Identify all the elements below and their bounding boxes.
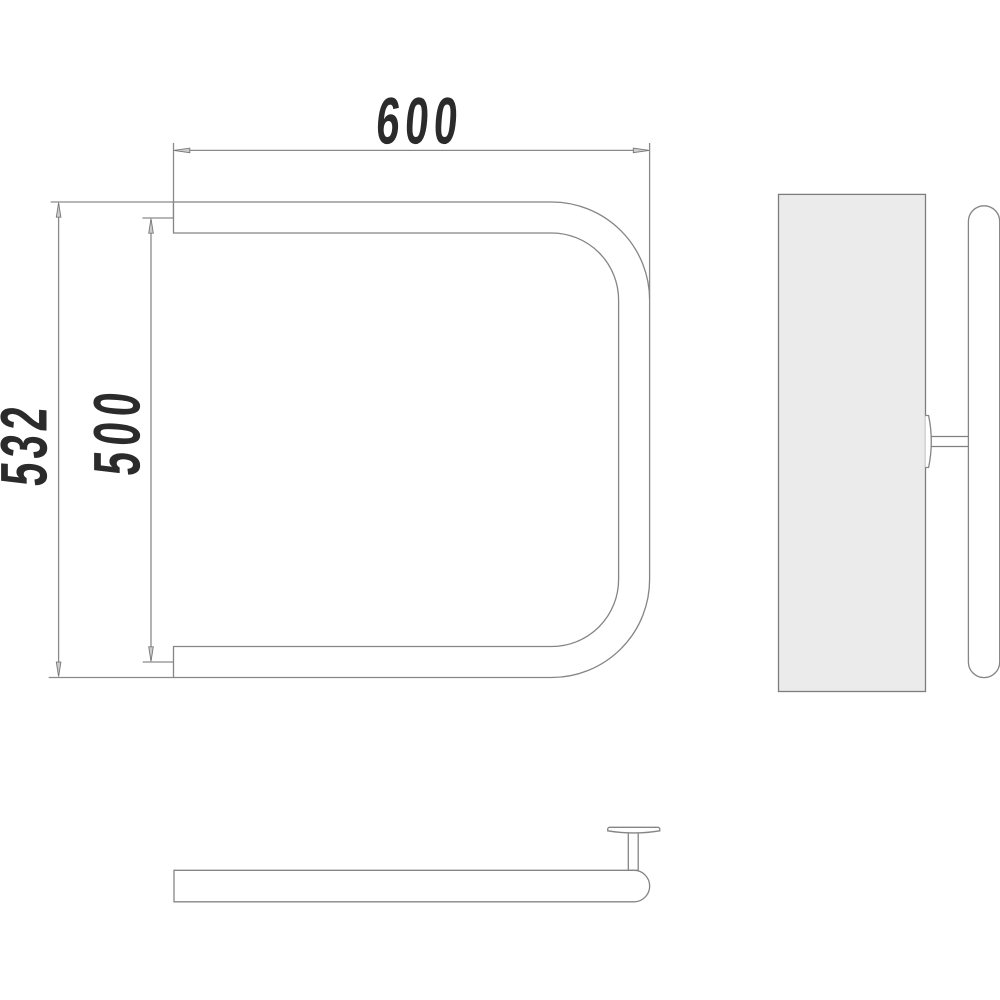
- svg-text:500: 500: [80, 383, 154, 477]
- svg-text:600: 600: [374, 84, 466, 158]
- svg-text:532: 532: [0, 400, 61, 489]
